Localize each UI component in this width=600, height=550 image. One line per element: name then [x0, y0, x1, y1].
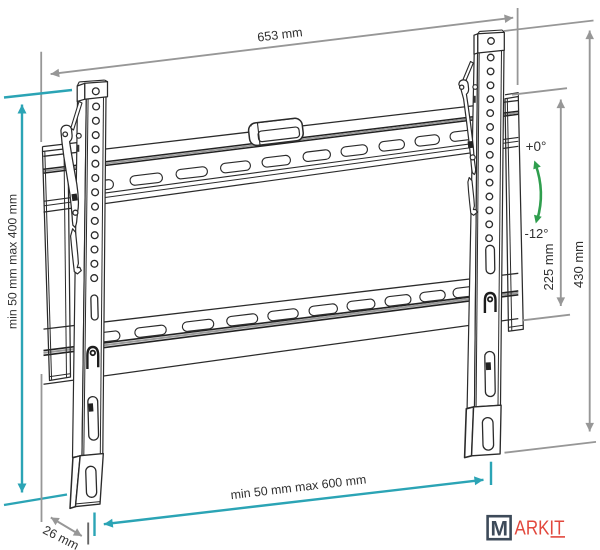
svg-text:M: M [490, 517, 508, 540]
svg-text:225 mm: 225 mm [541, 244, 556, 291]
svg-text:-12°: -12° [525, 226, 549, 241]
svg-text:+0°: +0° [526, 139, 547, 154]
svg-text:min 50 mm max 400 mm: min 50 mm max 400 mm [5, 194, 19, 329]
svg-text:430 mm: 430 mm [571, 241, 586, 288]
